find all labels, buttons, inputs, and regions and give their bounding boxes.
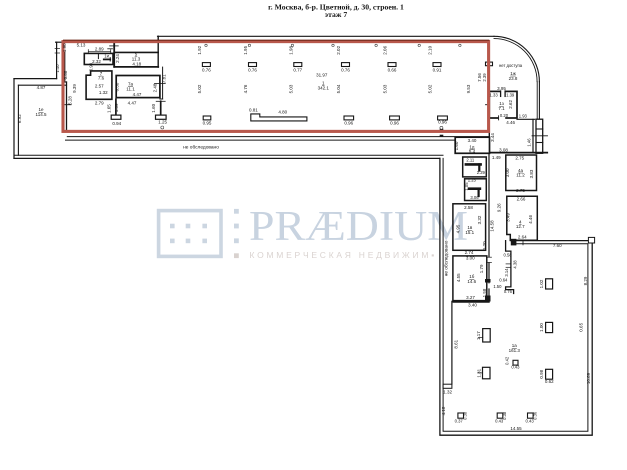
- svg-text:2.66: 2.66: [517, 196, 526, 201]
- svg-text:2.39: 2.39: [482, 73, 487, 82]
- svg-text:2.11: 2.11: [466, 157, 475, 162]
- svg-text:2.89: 2.89: [95, 47, 104, 52]
- svg-text:0.64: 0.64: [499, 278, 508, 283]
- svg-text:7.81: 7.81: [162, 74, 167, 83]
- svg-text:5.28: 5.28: [68, 96, 73, 105]
- svg-text:9.26: 9.26: [497, 203, 502, 212]
- svg-text:4.47: 4.47: [128, 100, 137, 105]
- svg-text:1.79: 1.79: [479, 264, 484, 273]
- svg-text:0.20: 0.20: [500, 113, 509, 118]
- svg-text:0.66: 0.66: [388, 68, 397, 73]
- svg-text:9.53: 9.53: [466, 84, 471, 93]
- svg-text:15.1: 15.1: [465, 230, 474, 235]
- svg-text:3.95: 3.95: [497, 86, 506, 91]
- svg-text:3.27: 3.27: [466, 295, 475, 300]
- svg-text:161.3: 161.3: [509, 348, 521, 353]
- svg-text:4.76: 4.76: [243, 84, 248, 93]
- svg-text:0.38: 0.38: [502, 411, 507, 420]
- svg-text:0.88: 0.88: [63, 70, 68, 79]
- svg-text:2.74: 2.74: [465, 250, 474, 255]
- svg-text:1.59: 1.59: [114, 103, 119, 112]
- svg-text:1.92: 1.92: [197, 45, 202, 54]
- svg-text:3.40: 3.40: [468, 138, 477, 143]
- svg-text:2.57: 2.57: [95, 84, 104, 89]
- svg-text:1.58: 1.58: [482, 288, 487, 297]
- svg-text:0.36: 0.36: [533, 411, 538, 420]
- svg-text:7.6: 7.6: [98, 76, 105, 81]
- svg-text:10.69: 10.69: [586, 372, 591, 384]
- svg-text:2.75: 2.75: [515, 156, 524, 161]
- svg-text:1.32: 1.32: [443, 389, 452, 394]
- svg-text:342.1: 342.1: [318, 86, 330, 91]
- svg-text:9.39: 9.39: [72, 84, 77, 93]
- svg-text:2.02: 2.02: [336, 45, 341, 54]
- svg-text:1.02: 1.02: [539, 279, 544, 288]
- svg-text:0.98: 0.98: [88, 62, 93, 71]
- svg-text:1.39: 1.39: [506, 93, 515, 98]
- svg-text:2.75: 2.75: [516, 188, 525, 193]
- svg-text:1.46: 1.46: [527, 138, 532, 147]
- svg-text:4.87: 4.87: [37, 85, 46, 90]
- svg-text:4.55: 4.55: [456, 273, 461, 282]
- svg-text:0.95: 0.95: [203, 121, 212, 126]
- svg-text:4.18: 4.18: [441, 406, 446, 415]
- svg-text:3.32: 3.32: [477, 215, 482, 224]
- svg-text:0.65: 0.65: [579, 322, 584, 331]
- svg-text:1.60: 1.60: [151, 103, 156, 112]
- svg-text:4.46: 4.46: [528, 214, 533, 223]
- svg-text:3.00: 3.00: [466, 256, 475, 261]
- svg-text:4.46: 4.46: [506, 120, 515, 125]
- svg-text:7.60: 7.60: [553, 243, 562, 248]
- svg-text:1.93: 1.93: [519, 113, 528, 118]
- svg-text:3.14: 3.14: [504, 268, 509, 277]
- svg-text:0.81: 0.81: [249, 108, 258, 113]
- svg-text:3.00: 3.00: [505, 168, 510, 177]
- svg-text:8.61: 8.61: [454, 339, 459, 348]
- svg-text:14.58: 14.58: [490, 220, 495, 232]
- svg-text:0.76: 0.76: [248, 68, 257, 73]
- svg-text:2.32: 2.32: [92, 59, 101, 64]
- svg-text:1.33: 1.33: [490, 93, 499, 98]
- svg-text:1.95: 1.95: [243, 45, 248, 54]
- svg-text:0.91: 0.91: [433, 68, 442, 73]
- svg-text:1.25: 1.25: [158, 120, 167, 125]
- svg-text:31.97: 31.97: [316, 72, 328, 77]
- svg-text:14.55: 14.55: [510, 426, 522, 431]
- svg-text:2.48: 2.48: [152, 83, 157, 92]
- svg-text:0.96: 0.96: [390, 121, 399, 126]
- svg-text:0.58: 0.58: [504, 253, 513, 258]
- svg-text:4.47: 4.47: [133, 92, 142, 97]
- svg-text:4.95: 4.95: [455, 224, 460, 233]
- svg-text:5.04: 5.04: [336, 84, 341, 93]
- svg-text:2.58: 2.58: [464, 205, 473, 210]
- svg-text:11.1: 11.1: [126, 86, 135, 91]
- svg-text:2.10: 2.10: [428, 45, 433, 54]
- svg-text:2.64: 2.64: [518, 235, 527, 240]
- svg-text:5.03: 5.03: [288, 84, 293, 93]
- svg-text:нет доступа: нет доступа: [499, 63, 523, 68]
- svg-text:1.23: 1.23: [468, 177, 477, 182]
- svg-text:7.1: 7.1: [498, 106, 505, 111]
- svg-text:этаж 7: этаж 7: [325, 10, 348, 19]
- svg-text:3.40: 3.40: [468, 302, 477, 307]
- svg-text:0.94: 0.94: [112, 121, 121, 126]
- svg-text:1.98: 1.98: [288, 45, 293, 54]
- svg-text:2.29: 2.29: [477, 170, 486, 175]
- svg-text:1.10: 1.10: [55, 64, 60, 73]
- svg-text:1.60: 1.60: [454, 141, 459, 150]
- svg-text:5.02: 5.02: [428, 84, 433, 93]
- svg-text:0.38: 0.38: [114, 82, 119, 91]
- svg-text:2.24: 2.24: [115, 54, 120, 63]
- svg-text:8.29: 8.29: [583, 276, 588, 285]
- svg-text:5.13: 5.13: [77, 42, 86, 47]
- svg-text:0.96: 0.96: [344, 121, 353, 126]
- svg-text:4.80: 4.80: [278, 110, 287, 115]
- svg-text:0.76: 0.76: [504, 289, 513, 294]
- svg-text:0.38: 0.38: [463, 411, 468, 420]
- svg-text:6.92: 6.92: [17, 114, 22, 123]
- svg-text:3.06: 3.06: [470, 195, 479, 200]
- svg-text:0.62: 0.62: [545, 379, 554, 384]
- svg-text:3.49: 3.49: [506, 213, 511, 222]
- svg-text:0.76: 0.76: [202, 68, 211, 73]
- svg-text:3.08: 3.08: [499, 147, 508, 152]
- svg-text:КОММЕРЧЕСКАЯ НЕДВИЖИМ▪: КОММЕРЧЕСКАЯ НЕДВИЖИМ▪: [250, 250, 437, 260]
- svg-text:0.76: 0.76: [341, 68, 350, 73]
- svg-text:0.98: 0.98: [539, 369, 544, 378]
- svg-text:4.18: 4.18: [132, 62, 141, 67]
- svg-text:5.03: 5.03: [383, 84, 388, 93]
- svg-text:не обследовано: не обследовано: [444, 240, 450, 276]
- svg-text:4.38: 4.38: [512, 260, 517, 269]
- svg-text:5.4: 5.4: [469, 149, 476, 154]
- svg-text:5.02: 5.02: [197, 84, 202, 93]
- svg-text:2.06: 2.06: [383, 45, 388, 54]
- svg-text:1.05: 1.05: [464, 182, 469, 191]
- svg-text:23.8: 23.8: [509, 76, 518, 81]
- svg-text:12.7: 12.7: [516, 224, 525, 229]
- svg-text:11.2: 11.2: [516, 172, 525, 177]
- svg-text:2.62: 2.62: [508, 99, 513, 108]
- svg-text:0.43: 0.43: [511, 364, 520, 369]
- svg-text:3.44: 3.44: [490, 133, 495, 142]
- svg-text:1.50: 1.50: [493, 284, 502, 289]
- svg-text:1.20: 1.20: [482, 241, 487, 250]
- svg-text:0.77: 0.77: [293, 68, 302, 73]
- svg-text:1.65: 1.65: [107, 104, 112, 113]
- svg-text:114.5: 114.5: [36, 112, 47, 117]
- svg-text:1.00: 1.00: [539, 323, 544, 332]
- svg-text:2.79: 2.79: [95, 101, 104, 106]
- svg-text:1и: 1и: [104, 54, 109, 59]
- svg-text:не обследовано: не обследовано: [183, 145, 219, 151]
- svg-text:1.17: 1.17: [476, 331, 481, 340]
- svg-text:PRÆDIUM: PRÆDIUM: [249, 204, 468, 250]
- svg-text:1.49: 1.49: [492, 155, 501, 160]
- svg-text:11.3: 11.3: [132, 56, 141, 61]
- svg-text:1.90: 1.90: [62, 43, 67, 52]
- svg-text:3.83: 3.83: [529, 169, 534, 178]
- svg-text:0.96: 0.96: [438, 119, 447, 124]
- svg-text:14.6: 14.6: [467, 279, 476, 284]
- svg-text:1.32: 1.32: [99, 90, 108, 95]
- svg-text:1.31: 1.31: [476, 368, 481, 377]
- svg-text:0.42: 0.42: [505, 356, 510, 365]
